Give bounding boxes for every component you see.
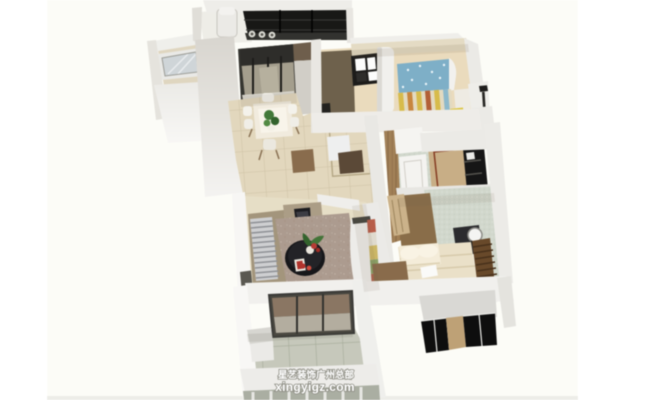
svg-text:xingyigz.com: xingyigz.com [275, 380, 355, 394]
